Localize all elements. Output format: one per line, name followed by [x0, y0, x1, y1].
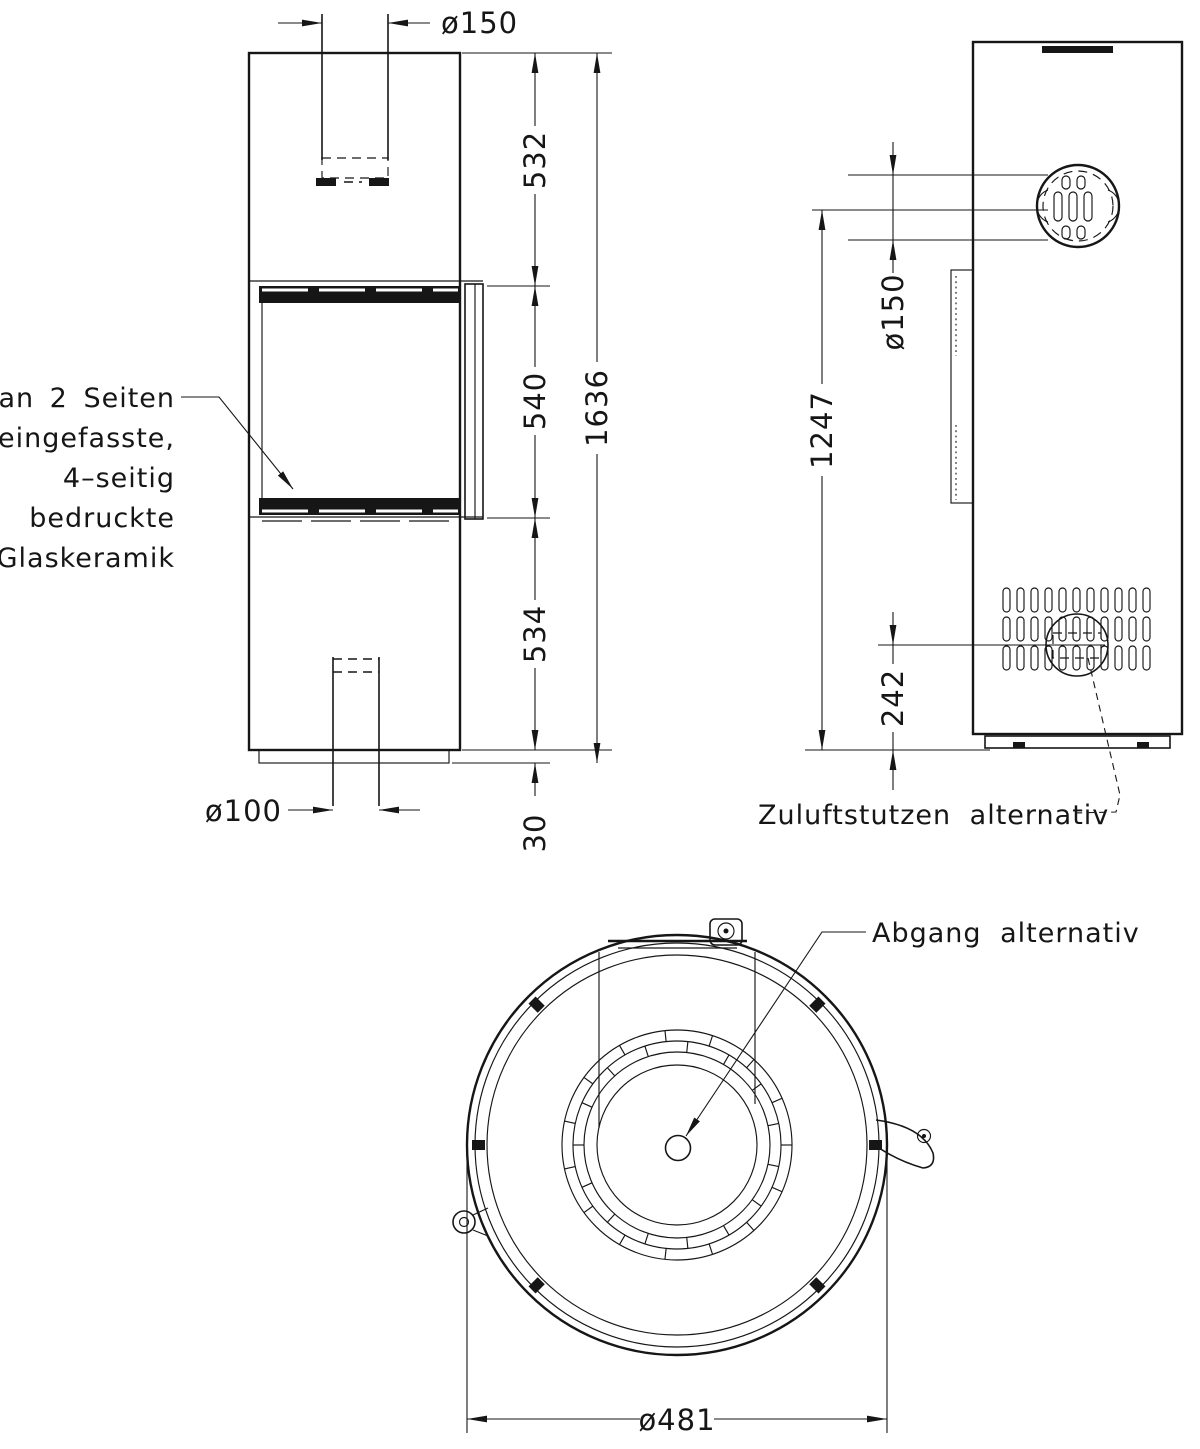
dim-front-base-height: 30	[518, 814, 552, 853]
dim-front-glass-section: 540	[518, 367, 552, 435]
dim-side-air-inlet-height: 242	[876, 664, 910, 732]
dim-front-flue-diameter: ø150	[441, 6, 518, 40]
dim-front-total-height-text: 1636	[580, 369, 614, 447]
canvas-background	[0, 0, 1200, 1449]
air-inlet-label: Zuluftstutzen alternativ	[758, 800, 1109, 831]
dim-side-flue-center-height: 1247	[805, 384, 839, 476]
glass-note-line-2: eingefasste,	[0, 423, 175, 454]
dim-top-outer-diameter: ø481	[638, 1403, 715, 1437]
glass-note-line-3: 4–seitig	[63, 463, 175, 494]
side-top-slot	[1042, 46, 1113, 53]
dim-front-air-inlet-diameter: ø100	[205, 794, 282, 828]
glass-note-line-4: bedruckte	[29, 503, 175, 534]
dim-front-glass-section-text: 540	[518, 372, 552, 430]
dim-front-total-height: 1636	[580, 362, 614, 454]
glass-note-line-1: an 2 Seiten	[0, 383, 175, 414]
stove-dimension-drawing: an 2 Seiten eingefasste, 4–seitig bedruc…	[0, 0, 1200, 1449]
dim-side-flue-diameter-text: ø150	[876, 273, 910, 350]
glass-note-line-5: Glaskeramik	[0, 543, 175, 574]
dim-front-base-height-text: 30	[518, 814, 552, 853]
dim-side-flue-diameter: ø150	[876, 273, 910, 350]
dim-front-bottom-section-text: 534	[518, 605, 552, 663]
dim-front-bottom-section: 534	[518, 600, 552, 668]
outlet-label: Abgang alternativ	[872, 918, 1140, 949]
dim-side-air-inlet-height-text: 242	[876, 669, 910, 727]
dim-front-top-section-text: 532	[518, 131, 552, 189]
dim-side-flue-center-height-text: 1247	[805, 391, 839, 469]
technical-drawing-page: an 2 Seiten eingefasste, 4–seitig bedruc…	[0, 0, 1200, 1449]
dim-front-top-section: 532	[518, 126, 552, 194]
